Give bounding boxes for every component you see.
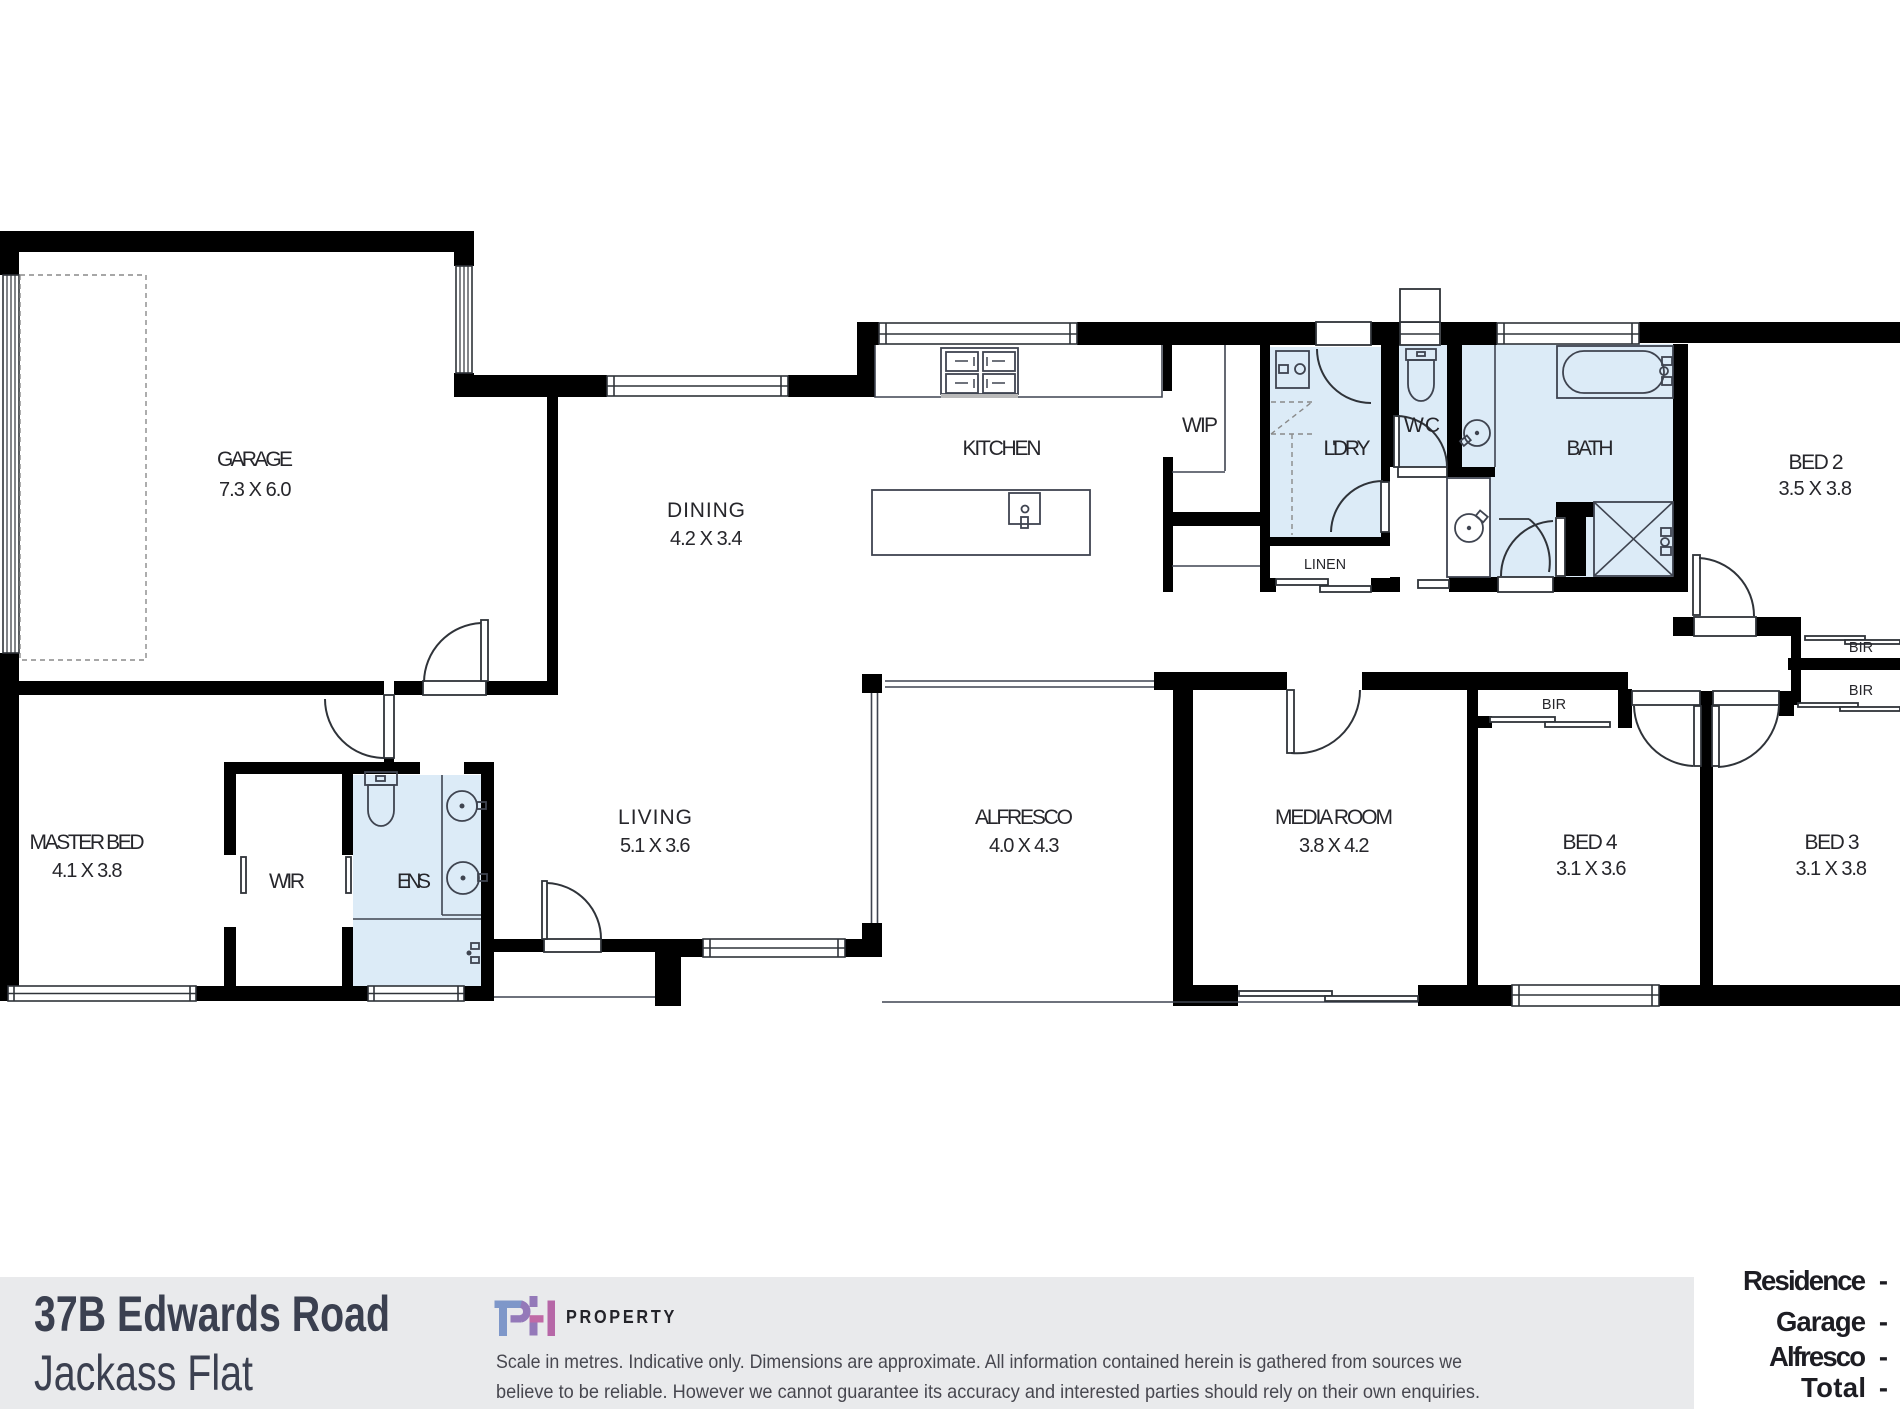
svg-text:WIP: WIP: [1182, 414, 1220, 437]
svg-text:-: -: [1879, 1265, 1888, 1296]
svg-text:believe to be reliable. Howeve: believe to be reliable. However we canno…: [496, 1381, 1480, 1403]
svg-text:BIR: BIR: [1542, 697, 1566, 713]
svg-text:37B Edwards Road: 37B Edwards Road: [34, 1286, 390, 1342]
svg-text:-: -: [1879, 1372, 1888, 1403]
svg-text:MASTER BED: MASTER BED: [30, 831, 147, 854]
svg-text:BED 2: BED 2: [1789, 451, 1846, 474]
svg-text:-: -: [1879, 1341, 1888, 1372]
svg-text:ALFRESCO: ALFRESCO: [975, 806, 1075, 829]
svg-text:3.8 X 4.2: 3.8 X 4.2: [1299, 835, 1371, 857]
svg-text:3.1 X 3.6: 3.1 X 3.6: [1556, 858, 1628, 880]
svg-text:Jackass Flat: Jackass Flat: [34, 1345, 253, 1401]
svg-text:Garage: Garage: [1776, 1306, 1866, 1337]
svg-text:4.1 X 3.8: 4.1 X 3.8: [52, 860, 124, 882]
svg-text:MEDIA ROOM: MEDIA ROOM: [1275, 806, 1395, 829]
svg-text:4.0 X 4.3: 4.0 X 4.3: [989, 835, 1061, 857]
svg-text:LIVING: LIVING: [618, 806, 694, 829]
svg-text:3.1 X 3.8: 3.1 X 3.8: [1796, 858, 1869, 880]
svg-text:7.3 X 6.0: 7.3 X 6.0: [219, 479, 293, 501]
svg-text:Scale in metres. Indicative on: Scale in metres. Indicative only. Dimens…: [496, 1351, 1462, 1373]
svg-text:4.2 X 3.4: 4.2 X 3.4: [670, 528, 744, 550]
svg-text:KITCHEN: KITCHEN: [963, 437, 1044, 460]
svg-text:BED 3: BED 3: [1805, 831, 1862, 854]
svg-text:PROPERTY: PROPERTY: [566, 1307, 677, 1327]
svg-text:GARAGE: GARAGE: [217, 448, 295, 471]
svg-text:BED 4: BED 4: [1563, 831, 1620, 854]
svg-text:Total: Total: [1801, 1372, 1866, 1403]
svg-text:BATH: BATH: [1567, 437, 1616, 460]
svg-text:-: -: [1879, 1306, 1888, 1337]
svg-text:BIR: BIR: [1849, 640, 1873, 656]
svg-text:LINEN: LINEN: [1304, 557, 1346, 573]
svg-text:BIR: BIR: [1849, 683, 1873, 699]
svg-text:L'DRY: L'DRY: [1324, 437, 1373, 460]
svg-text:5.1 X 3.6: 5.1 X 3.6: [620, 835, 692, 857]
svg-text:ENS: ENS: [397, 870, 433, 893]
svg-text:WC: WC: [1404, 414, 1442, 437]
svg-text:Residence: Residence: [1743, 1265, 1866, 1296]
svg-text:WIR: WIR: [269, 870, 307, 893]
svg-text:Alfresco: Alfresco: [1769, 1341, 1866, 1372]
svg-text:DINING: DINING: [667, 499, 747, 522]
svg-text:3.5 X 3.8: 3.5 X 3.8: [1779, 478, 1854, 500]
